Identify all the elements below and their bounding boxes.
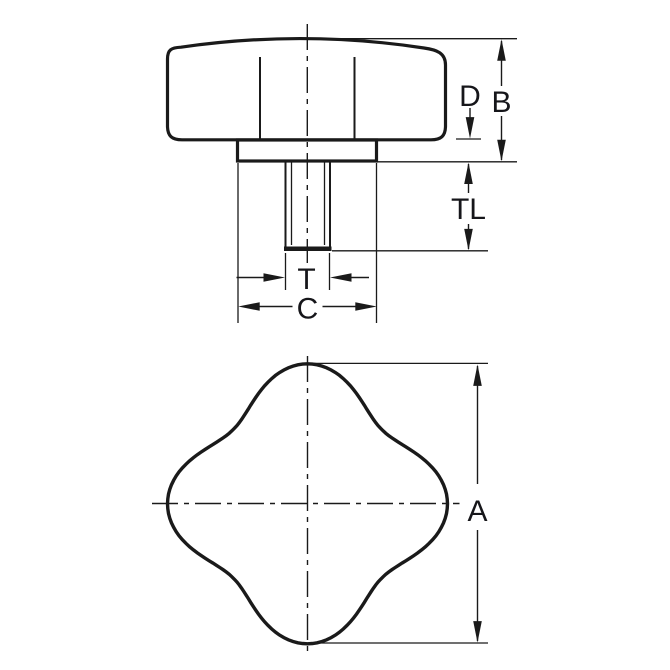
dim-B-label: B xyxy=(491,86,511,119)
knob-technical-drawing: B D TL T C xyxy=(0,0,670,670)
front-view: B D TL T C xyxy=(168,24,518,326)
dim-T-label: T xyxy=(297,263,315,296)
dim-B-arrow-top xyxy=(497,39,506,61)
dimension-T: T xyxy=(237,263,370,296)
dim-C-label: C xyxy=(297,293,319,326)
dim-B-arrow-bottom xyxy=(497,140,506,162)
dimension-C: C xyxy=(238,293,377,326)
dim-TL-arrow-top xyxy=(464,163,473,185)
dim-TL-label: TL xyxy=(451,193,486,226)
plan-view: A xyxy=(152,356,488,654)
dim-T-arrow-left xyxy=(264,273,286,282)
dimension-A: A xyxy=(467,364,487,642)
front-knob-outline xyxy=(168,39,446,140)
dimension-TL: TL xyxy=(451,163,486,251)
dim-TL-arrow-bottom xyxy=(464,229,473,251)
drawing-canvas: B D TL T C xyxy=(0,0,670,670)
dimension-D: D xyxy=(459,80,481,139)
dim-A-arrow-bottom xyxy=(473,621,482,643)
dim-C-arrow-left xyxy=(238,302,260,311)
dim-D-label: D xyxy=(459,80,481,113)
dim-C-arrow-right xyxy=(355,302,377,311)
dim-A-arrow-top xyxy=(473,364,482,386)
dim-A-label: A xyxy=(467,495,487,528)
dim-D-arrow xyxy=(466,117,475,139)
dim-T-arrow-right xyxy=(330,273,352,282)
dimension-B: B xyxy=(491,39,511,161)
